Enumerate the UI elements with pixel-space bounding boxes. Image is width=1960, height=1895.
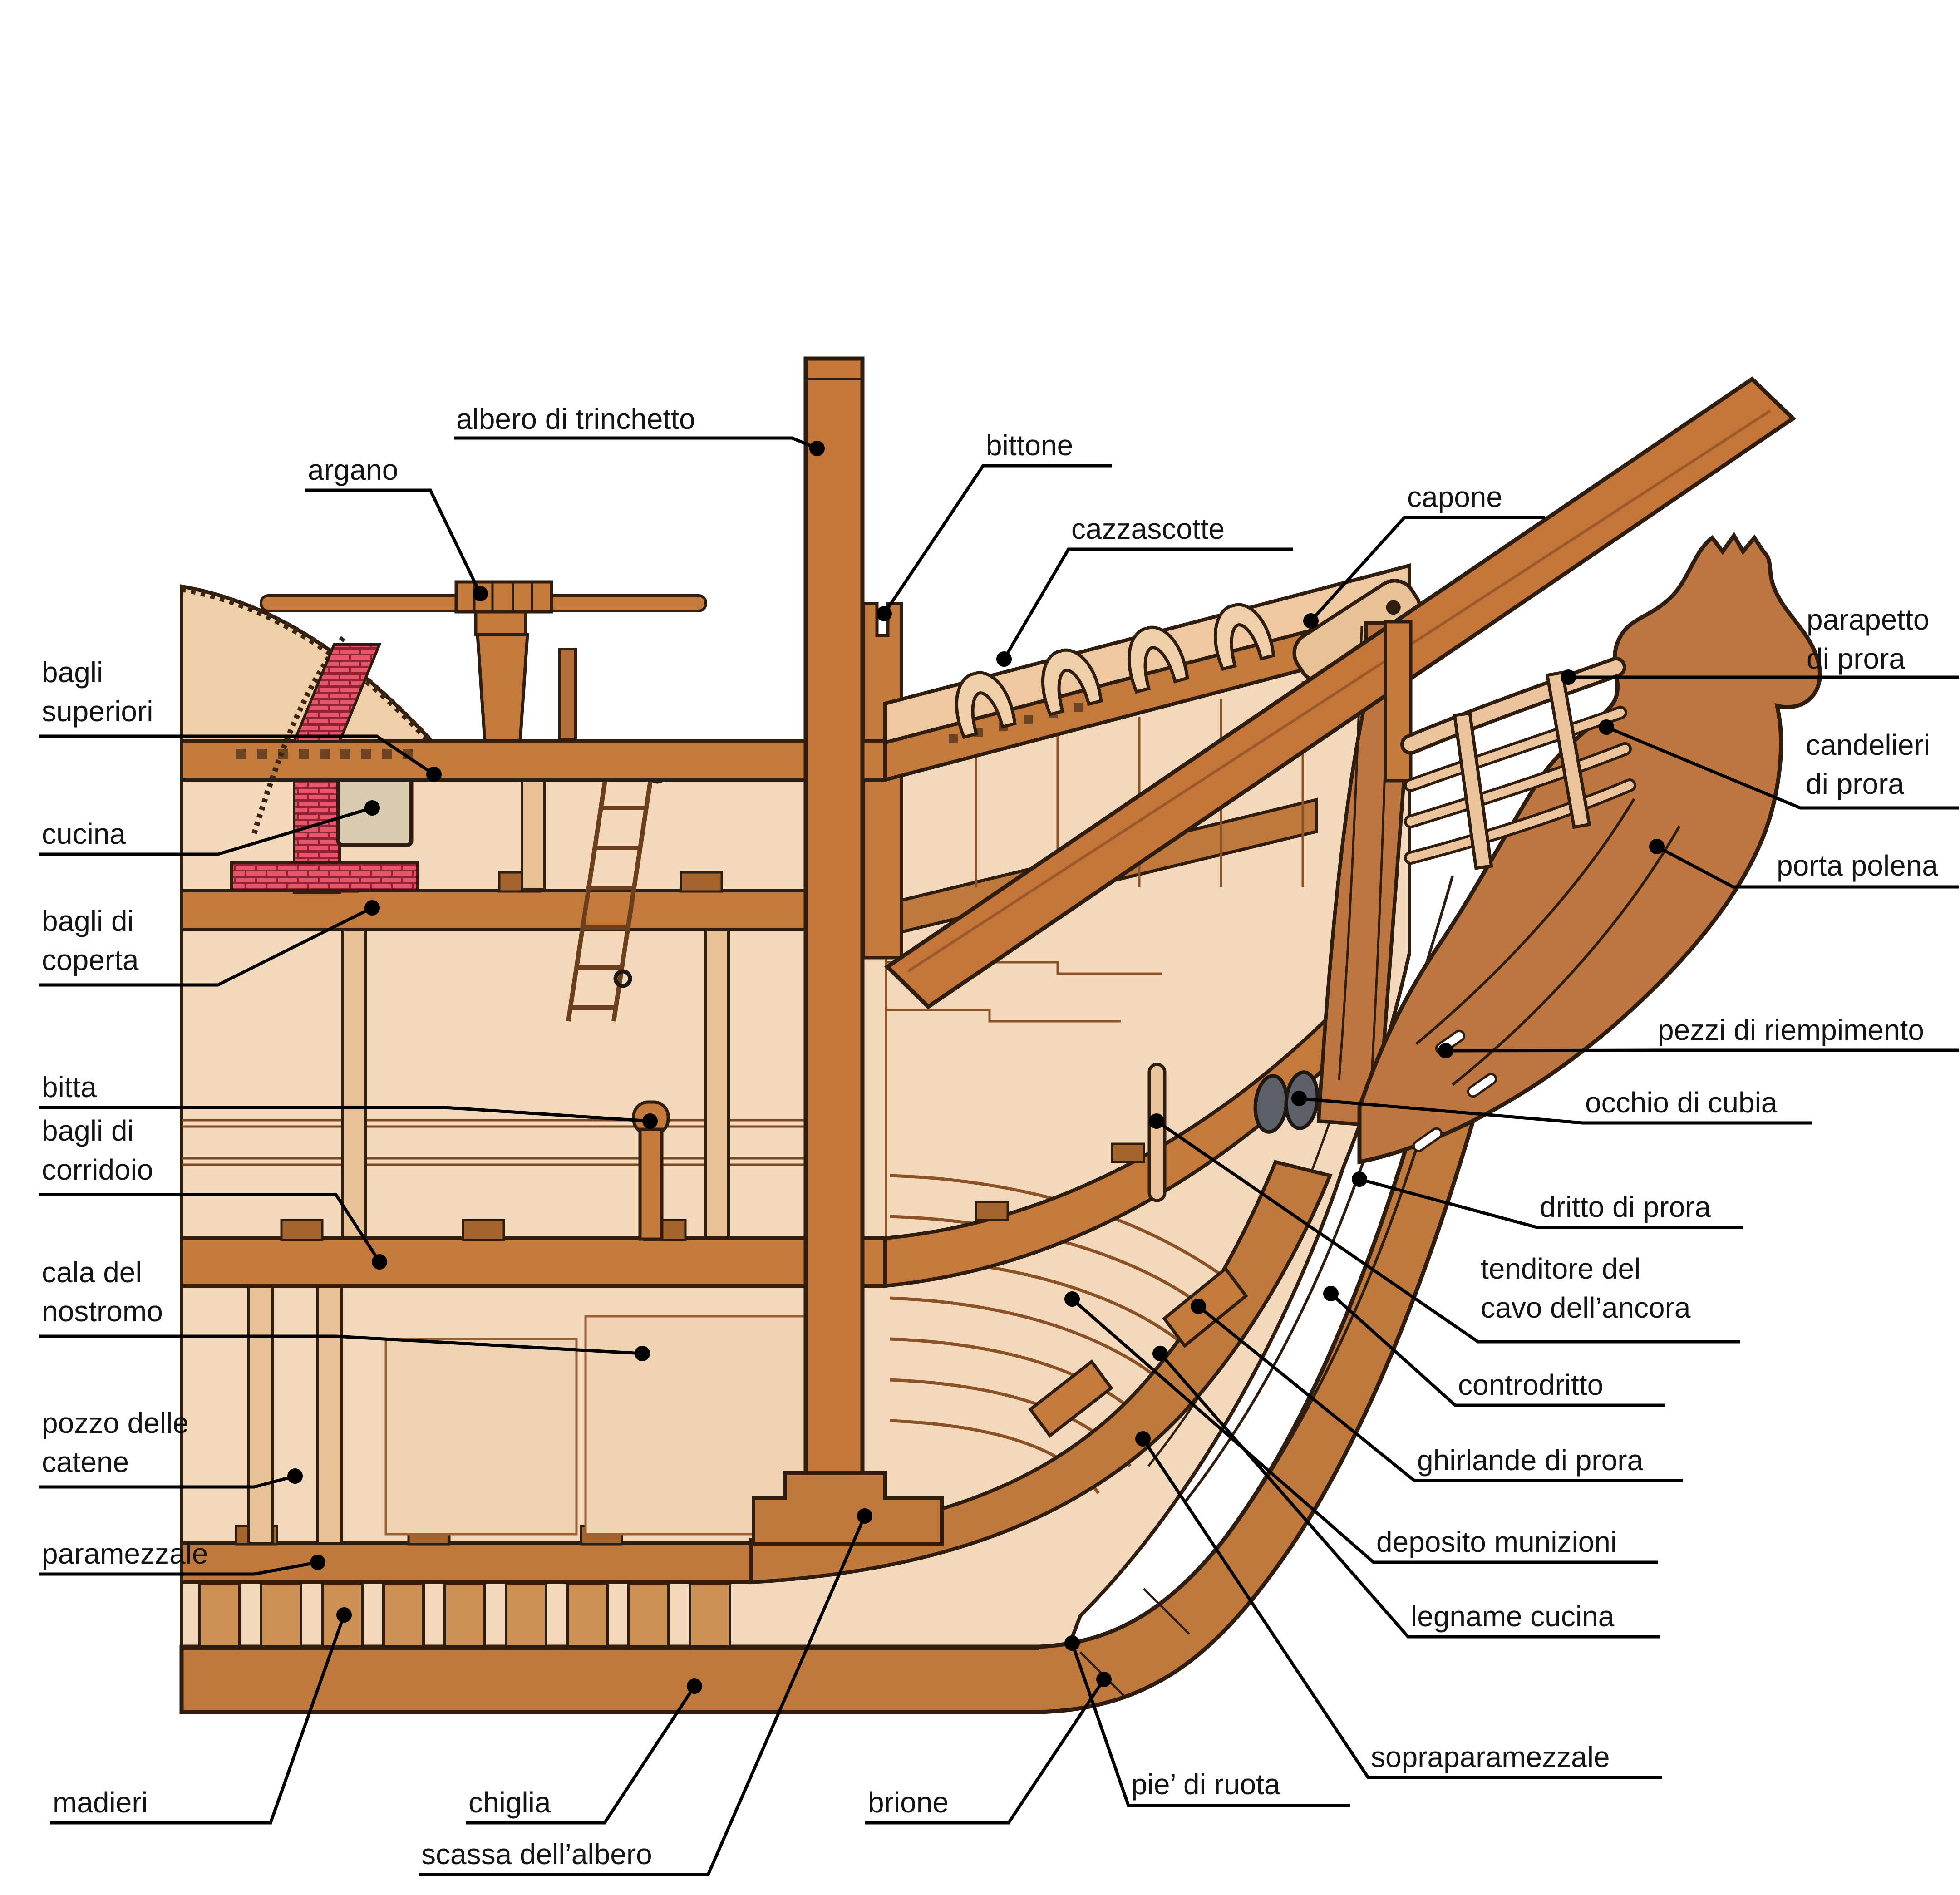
madieri-floor-timbers <box>200 1583 730 1647</box>
label-paramezzale: paramezzale <box>42 1534 208 1573</box>
label-pezzi-di-riempimento: pezzi di riempimento <box>1658 1010 1924 1049</box>
label-pie-di-ruota: pie’ di ruota <box>1131 1765 1280 1804</box>
label-chiglia: chiglia <box>468 1783 551 1822</box>
anchor-cable-tensioner <box>1149 1064 1165 1201</box>
label-legname-cucina: legname cucina <box>1411 1597 1614 1636</box>
label-bagli-di-corridoio: bagli dicorridoio <box>42 1111 153 1189</box>
label-capone: capone <box>1407 477 1502 517</box>
label-deposito-munizioni: deposito munizioni <box>1376 1522 1617 1561</box>
label-albero-di-trinchetto: albero di trinchetto <box>456 399 695 438</box>
label-ghirlande-di-prora: ghirlande di prora <box>1417 1441 1643 1480</box>
label-dritto-di-prora: dritto di prora <box>1540 1187 1711 1226</box>
label-cazzascotte: cazzascotte <box>1071 509 1225 548</box>
label-parapetto-di-prora: parapettodi prora <box>1807 600 1929 678</box>
label-sopraparamezzale: sopraparamezzale <box>1371 1737 1610 1777</box>
label-porta-polena: porta polena <box>1777 846 1938 885</box>
label-bitta: bitta <box>42 1068 97 1107</box>
label-pozzo-delle-catene: pozzo dellecatene <box>42 1403 189 1482</box>
label-tenditore-del-cavo-dell-ancora: tenditore delcavo dell’ancora <box>1481 1249 1691 1327</box>
ship-cross-section-drawing <box>0 0 1960 1895</box>
label-cala-del-nostromo: cala delnostromo <box>42 1253 163 1331</box>
label-candelieri-di-prora: candelieridi prora <box>1806 725 1930 803</box>
label-scassa-dell-albero: scassa dell’albero <box>421 1835 652 1874</box>
foremast <box>806 359 862 1516</box>
label-argano: argano <box>308 450 398 489</box>
label-brione: brione <box>868 1783 949 1822</box>
label-bagli-superiori: baglisuperiori <box>42 653 153 731</box>
label-bittone: bittone <box>986 426 1073 465</box>
label-cucina: cucina <box>42 814 126 853</box>
label-controdritto: controdritto <box>1458 1365 1603 1404</box>
diagram-canvas: albero di trinchetto argano bittone cazz… <box>0 0 1960 1895</box>
label-madieri: madieri <box>53 1783 148 1822</box>
label-occhio-di-cubia: occhio di cubia <box>1585 1083 1777 1122</box>
label-bagli-di-coperta: bagli dicoperta <box>42 901 138 979</box>
